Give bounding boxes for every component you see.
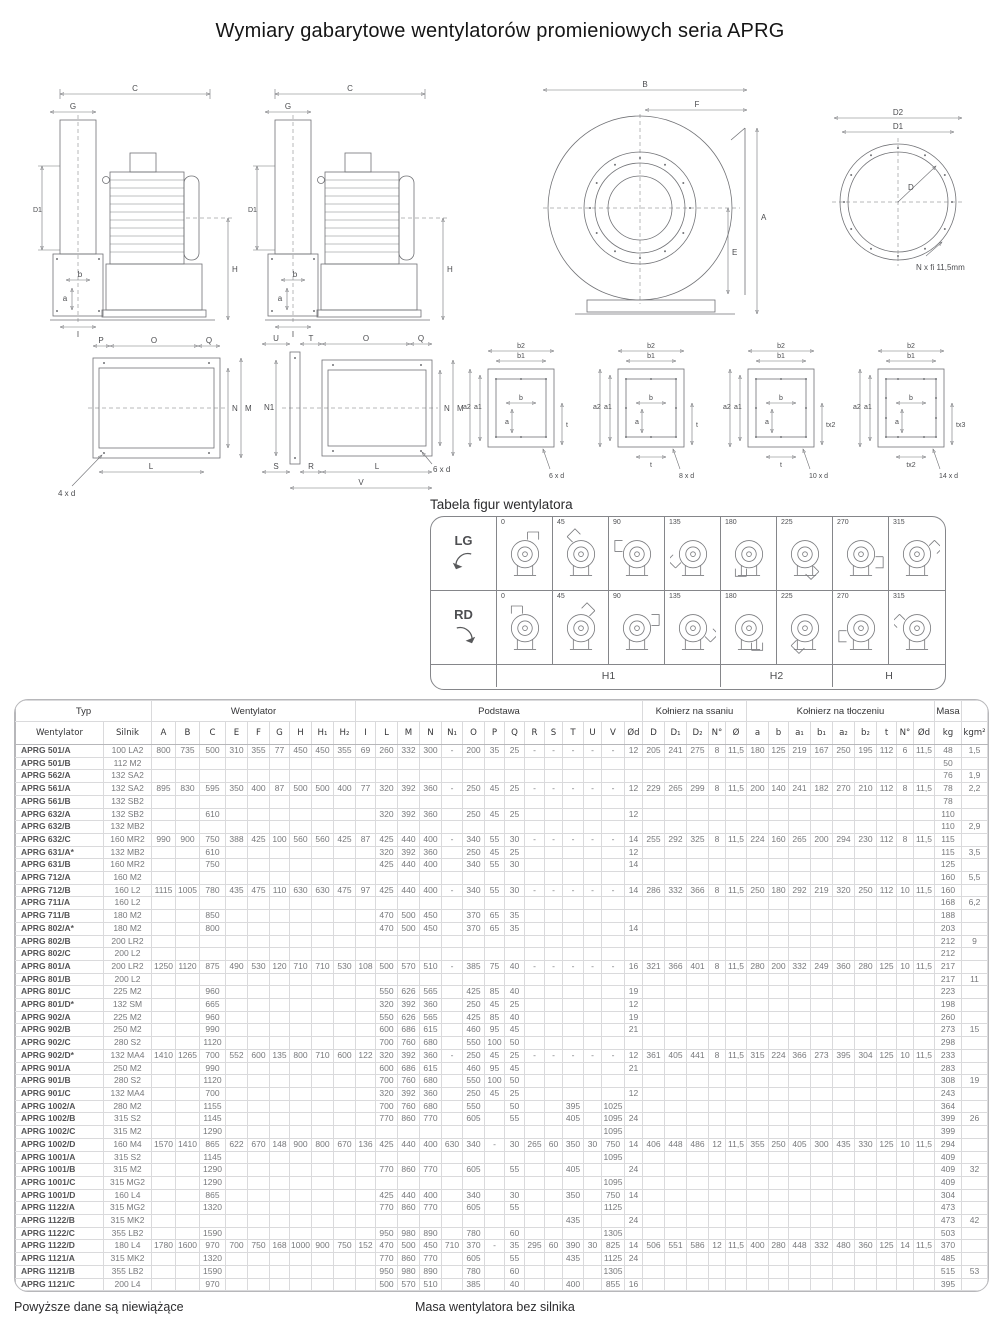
- value-cell: 990: [200, 1062, 226, 1075]
- value-cell: 24: [625, 1215, 643, 1228]
- value-cell: [584, 1100, 602, 1113]
- value-cell: 360: [833, 960, 855, 973]
- value-cell: [811, 948, 833, 961]
- value-cell: [877, 1011, 897, 1024]
- value-cell: [270, 1113, 290, 1126]
- value-cell: 40: [505, 986, 525, 999]
- table-row: APRG 1002/C315 M212901095399: [16, 1126, 988, 1139]
- value-cell: [769, 808, 789, 821]
- value-cell: [420, 770, 442, 783]
- value-cell: 60: [505, 1227, 525, 1240]
- value-cell: [747, 1278, 769, 1291]
- value-cell: 115: [935, 833, 962, 846]
- value-cell: 565: [420, 1011, 442, 1024]
- value-cell: [356, 986, 376, 999]
- value-cell: [270, 986, 290, 999]
- value-cell: [897, 1176, 914, 1189]
- value-cell: 500: [398, 922, 420, 935]
- value-cell: [584, 872, 602, 885]
- value-cell: 1125: [602, 1253, 625, 1266]
- value-cell: [334, 935, 356, 948]
- value-cell: 14: [625, 1189, 643, 1202]
- value-cell: [152, 986, 176, 999]
- value-cell: 855: [602, 1278, 625, 1291]
- dim-label-b-small: b: [909, 395, 913, 402]
- value-cell: [248, 1087, 270, 1100]
- value-cell: [152, 1176, 176, 1189]
- value-cell: 392: [398, 999, 420, 1012]
- value-cell: 50: [505, 1075, 525, 1088]
- fan-orientation-icon: [838, 602, 884, 656]
- table-row: APRG 1001/D160 L486542544040034030350750…: [16, 1189, 988, 1202]
- value-cell: 19: [625, 986, 643, 999]
- hole-note-6xd: 6 x d: [433, 465, 450, 474]
- value-cell: [665, 1176, 687, 1189]
- value-cell: [726, 1278, 747, 1291]
- value-cell: [248, 1024, 270, 1037]
- value-cell: [334, 1189, 356, 1202]
- value-cell: [709, 948, 726, 961]
- value-cell: [602, 1062, 625, 1075]
- dim-label-a-small: a: [895, 419, 899, 426]
- value-cell: [877, 1202, 897, 1215]
- hole-note-4xd: 4 x d: [58, 489, 75, 496]
- value-cell: [584, 1176, 602, 1189]
- value-cell: [356, 1024, 376, 1037]
- value-cell: 780: [463, 1227, 485, 1240]
- value-cell: [789, 821, 811, 834]
- value-cell: [545, 757, 563, 770]
- value-cell: [855, 986, 877, 999]
- fan-type-cell: APRG 711/A: [16, 897, 104, 910]
- value-cell: -: [525, 783, 545, 796]
- value-cell: [747, 1189, 769, 1202]
- value-cell: [726, 846, 747, 859]
- value-cell: [270, 1037, 290, 1050]
- value-cell: 12: [625, 808, 643, 821]
- value-cell: [334, 1037, 356, 1050]
- value-cell: 249: [811, 960, 833, 973]
- value-cell: 875: [200, 960, 226, 973]
- value-cell: 203: [935, 922, 962, 935]
- value-cell: 30: [505, 1189, 525, 1202]
- value-cell: [334, 1164, 356, 1177]
- value-cell: [726, 872, 747, 885]
- value-cell: [962, 1189, 988, 1202]
- value-cell: [334, 1151, 356, 1164]
- value-cell: [877, 1215, 897, 1228]
- value-cell: [420, 1176, 442, 1189]
- value-cell: 340: [463, 859, 485, 872]
- value-cell: [602, 1011, 625, 1024]
- value-cell: [877, 757, 897, 770]
- value-cell: [226, 1062, 248, 1075]
- dim-label-b-small: b: [649, 395, 653, 402]
- value-cell: [152, 1113, 176, 1126]
- figure-cell: 90: [609, 591, 665, 665]
- value-cell: 440: [398, 1189, 420, 1202]
- value-cell: [545, 872, 563, 885]
- value-cell: 1000: [290, 1240, 312, 1253]
- fan-type-cell: APRG 561/B: [16, 795, 104, 808]
- value-cell: [563, 948, 584, 961]
- value-cell: 265: [665, 783, 687, 796]
- value-cell: 530: [248, 960, 270, 973]
- value-cell: [769, 1253, 789, 1266]
- value-cell: 11,5: [914, 783, 935, 796]
- value-cell: [789, 757, 811, 770]
- value-cell: [226, 1011, 248, 1024]
- value-cell: [643, 1164, 665, 1177]
- value-cell: [962, 910, 988, 923]
- value-cell: [356, 973, 376, 986]
- value-cell: [505, 872, 525, 885]
- value-cell: 615: [420, 1062, 442, 1075]
- value-cell: [290, 948, 312, 961]
- value-cell: [584, 1113, 602, 1126]
- value-cell: [855, 808, 877, 821]
- value-cell: 55: [485, 884, 505, 897]
- value-cell: [625, 1037, 643, 1050]
- value-cell: 11,5: [914, 833, 935, 846]
- value-cell: [485, 1227, 505, 1240]
- value-cell: [442, 986, 463, 999]
- value-cell: [769, 1062, 789, 1075]
- fan-type-cell: APRG 901/B: [16, 1075, 104, 1088]
- rotation-arrow-lg: [449, 550, 479, 574]
- value-cell: [312, 935, 334, 948]
- value-cell: [334, 986, 356, 999]
- value-cell: [176, 948, 200, 961]
- value-cell: 560: [312, 833, 334, 846]
- value-cell: [334, 1062, 356, 1075]
- value-cell: [505, 770, 525, 783]
- value-cell: [877, 1126, 897, 1139]
- value-cell: 24: [625, 1253, 643, 1266]
- value-cell: 233: [935, 1049, 962, 1062]
- table-row: APRG 1001/C315 MG212901095409: [16, 1176, 988, 1189]
- value-cell: [877, 808, 897, 821]
- value-cell: 560: [290, 833, 312, 846]
- value-cell: 160: [935, 884, 962, 897]
- value-cell: [811, 897, 833, 910]
- value-cell: [769, 1164, 789, 1177]
- value-cell: [897, 935, 914, 948]
- value-cell: [709, 986, 726, 999]
- value-cell: 475: [334, 884, 356, 897]
- value-cell: [789, 1024, 811, 1037]
- value-cell: [442, 795, 463, 808]
- value-cell: [643, 1113, 665, 1126]
- value-cell: 610: [200, 846, 226, 859]
- angle-label: 90: [613, 519, 621, 526]
- value-cell: [687, 1011, 709, 1024]
- value-cell: [270, 1024, 290, 1037]
- value-cell: [962, 1011, 988, 1024]
- value-cell: [665, 1202, 687, 1215]
- value-cell: [897, 910, 914, 923]
- value-cell: 8: [709, 884, 726, 897]
- value-cell: [855, 1011, 877, 1024]
- value-cell: [176, 922, 200, 935]
- value-cell: [747, 1202, 769, 1215]
- value-cell: [334, 1265, 356, 1278]
- value-cell: [811, 872, 833, 885]
- value-cell: 360: [420, 999, 442, 1012]
- value-cell: 60: [545, 1240, 563, 1253]
- value-cell: [485, 1151, 505, 1164]
- value-cell: [563, 1087, 584, 1100]
- value-cell: [584, 1227, 602, 1240]
- value-cell: [811, 922, 833, 935]
- value-cell: [769, 1215, 789, 1228]
- value-cell: [914, 1278, 935, 1291]
- value-cell: [525, 821, 545, 834]
- value-cell: 77: [270, 745, 290, 758]
- value-cell: 48: [935, 745, 962, 758]
- value-cell: [176, 897, 200, 910]
- dim-label-a1: a1: [474, 404, 482, 411]
- value-cell: [811, 986, 833, 999]
- value-cell: 400: [747, 1240, 769, 1253]
- value-cell: [312, 1113, 334, 1126]
- value-cell: [789, 973, 811, 986]
- value-cell: 95: [485, 1024, 505, 1037]
- value-cell: [248, 1227, 270, 1240]
- value-cell: 299: [687, 783, 709, 796]
- value-cell: [833, 986, 855, 999]
- value-cell: 686: [398, 1062, 420, 1075]
- value-cell: [485, 1126, 505, 1139]
- value-cell: [833, 795, 855, 808]
- value-cell: [248, 986, 270, 999]
- value-cell: [270, 999, 290, 1012]
- value-cell: [962, 1138, 988, 1151]
- value-cell: 392: [398, 808, 420, 821]
- value-cell: [356, 795, 376, 808]
- value-cell: [914, 935, 935, 948]
- value-cell: [962, 986, 988, 999]
- value-cell: 900: [312, 1240, 334, 1253]
- value-cell: 65: [485, 922, 505, 935]
- value-cell: [248, 1126, 270, 1139]
- value-cell: [914, 897, 935, 910]
- value-cell: -: [442, 745, 463, 758]
- value-cell: [420, 1126, 442, 1139]
- table-row: APRG 1122/B315 MK24352447342: [16, 1215, 988, 1228]
- value-cell: [687, 948, 709, 961]
- value-cell: -: [545, 884, 563, 897]
- value-cell: [505, 935, 525, 948]
- value-cell: 360: [420, 846, 442, 859]
- fan-type-cell: APRG 902/A: [16, 1011, 104, 1024]
- value-cell: [376, 935, 398, 948]
- value-cell: [584, 910, 602, 923]
- value-cell: [833, 1024, 855, 1037]
- value-cell: [643, 910, 665, 923]
- fan-orientation-icon: [614, 528, 660, 582]
- fan-orientation-icon: [838, 528, 884, 582]
- value-cell: [897, 1227, 914, 1240]
- value-cell: 60: [545, 1138, 563, 1151]
- column-header: a: [747, 722, 769, 745]
- value-cell: 148: [270, 1138, 290, 1151]
- value-cell: [312, 1126, 334, 1139]
- value-cell: [914, 986, 935, 999]
- fan-type-cell: APRG 561/A: [16, 783, 104, 796]
- value-cell: [897, 1151, 914, 1164]
- value-cell: [398, 1176, 420, 1189]
- value-cell: 700: [200, 1087, 226, 1100]
- column-header: S: [545, 722, 563, 745]
- value-cell: [962, 1151, 988, 1164]
- dim-label-b-small: b: [519, 395, 523, 402]
- value-cell: 680: [420, 1037, 442, 1050]
- value-cell: 35: [505, 1240, 525, 1253]
- value-cell: [226, 1087, 248, 1100]
- value-cell: -: [584, 745, 602, 758]
- value-cell: [914, 948, 935, 961]
- value-cell: [485, 770, 505, 783]
- value-cell: [176, 1062, 200, 1075]
- value-cell: [398, 935, 420, 948]
- value-cell: [665, 999, 687, 1012]
- column-header: Ø: [726, 722, 747, 745]
- value-cell: [442, 846, 463, 859]
- value-cell: 11,5: [726, 783, 747, 796]
- value-cell: -: [584, 884, 602, 897]
- value-cell: 45: [485, 999, 505, 1012]
- dim-label-n1: N1: [264, 403, 275, 412]
- value-cell: 265: [789, 833, 811, 846]
- value-cell: [897, 1265, 914, 1278]
- value-cell: [687, 808, 709, 821]
- value-cell: 182: [811, 783, 833, 796]
- value-cell: 760: [398, 1100, 420, 1113]
- value-cell: [726, 859, 747, 872]
- fan-orientation-icon: [558, 528, 604, 582]
- value-cell: 250: [463, 808, 485, 821]
- value-cell: [376, 973, 398, 986]
- value-cell: [855, 770, 877, 783]
- value-cell: 275: [687, 745, 709, 758]
- value-cell: [833, 1265, 855, 1278]
- value-cell: [248, 795, 270, 808]
- value-cell: 224: [747, 833, 769, 846]
- fan-type-cell: APRG 562/A: [16, 770, 104, 783]
- value-cell: [584, 770, 602, 783]
- value-cell: [356, 1075, 376, 1088]
- value-cell: [747, 1227, 769, 1240]
- value-cell: [769, 795, 789, 808]
- value-cell: [176, 1087, 200, 1100]
- table-row: APRG 561/B132 SB278: [16, 795, 988, 808]
- value-cell: [545, 897, 563, 910]
- value-cell: -: [563, 1049, 584, 1062]
- value-cell: [152, 1100, 176, 1113]
- value-cell: 552: [226, 1049, 248, 1062]
- value-cell: 360: [420, 1087, 442, 1100]
- value-cell: 167: [811, 745, 833, 758]
- value-cell: [290, 935, 312, 948]
- table-row: APRG 561/A132 SA289583059535040087500500…: [16, 783, 988, 796]
- value-cell: 265: [525, 1138, 545, 1151]
- value-cell: 750: [248, 1240, 270, 1253]
- dim-label-a-small: a: [765, 419, 769, 426]
- column-header: Silnik: [104, 722, 152, 745]
- value-cell: [290, 922, 312, 935]
- value-cell: [290, 1037, 312, 1050]
- value-cell: [226, 821, 248, 834]
- value-cell: [290, 1024, 312, 1037]
- table-row: APRG 1121/B355 LB21590950980890780601305…: [16, 1265, 988, 1278]
- value-cell: [545, 910, 563, 923]
- figure-cell: 270: [833, 591, 889, 665]
- value-cell: -: [525, 1049, 545, 1062]
- value-cell: 630: [312, 884, 334, 897]
- figure-cell: 90: [609, 517, 665, 591]
- angle-label: 0: [501, 593, 505, 600]
- value-cell: 35: [505, 910, 525, 923]
- value-cell: 11,5: [726, 1138, 747, 1151]
- value-cell: 5,5: [962, 872, 988, 885]
- value-cell: 1095: [602, 1176, 625, 1189]
- value-cell: [442, 1227, 463, 1240]
- value-cell: 16: [625, 1278, 643, 1291]
- value-cell: 1320: [200, 1202, 226, 1215]
- value-cell: 315 MG2: [104, 1202, 152, 1215]
- value-cell: [290, 859, 312, 872]
- value-cell: 865: [200, 1189, 226, 1202]
- value-cell: [833, 1062, 855, 1075]
- value-cell: [855, 1176, 877, 1189]
- value-cell: [584, 1037, 602, 1050]
- value-cell: [709, 1087, 726, 1100]
- table-row: APRG 801/B200 L221711: [16, 973, 988, 986]
- value-cell: [545, 1037, 563, 1050]
- value-cell: 800: [152, 745, 176, 758]
- value-cell: [584, 973, 602, 986]
- value-cell: [270, 1164, 290, 1177]
- value-cell: 450: [312, 745, 334, 758]
- value-cell: [811, 1164, 833, 1177]
- value-cell: [505, 1126, 525, 1139]
- value-cell: [584, 1126, 602, 1139]
- value-cell: [855, 935, 877, 948]
- value-cell: [545, 1151, 563, 1164]
- value-cell: [442, 808, 463, 821]
- value-cell: [290, 897, 312, 910]
- value-cell: [877, 859, 897, 872]
- value-cell: [709, 821, 726, 834]
- value-cell: [789, 1278, 811, 1291]
- value-cell: [643, 935, 665, 948]
- value-cell: [665, 948, 687, 961]
- value-cell: [334, 1024, 356, 1037]
- value-cell: [709, 1253, 726, 1266]
- value-cell: 286: [643, 884, 665, 897]
- value-cell: 1120: [176, 960, 200, 973]
- value-cell: [270, 973, 290, 986]
- value-cell: 12: [625, 846, 643, 859]
- value-cell: 19: [625, 1011, 643, 1024]
- value-cell: [248, 846, 270, 859]
- column-header: I: [356, 722, 376, 745]
- table-row: APRG 802/A*180 M280047050045037065351420…: [16, 922, 988, 935]
- dim-label-t-right: tx2: [826, 422, 835, 429]
- value-cell: [226, 1164, 248, 1177]
- value-cell: [290, 1215, 312, 1228]
